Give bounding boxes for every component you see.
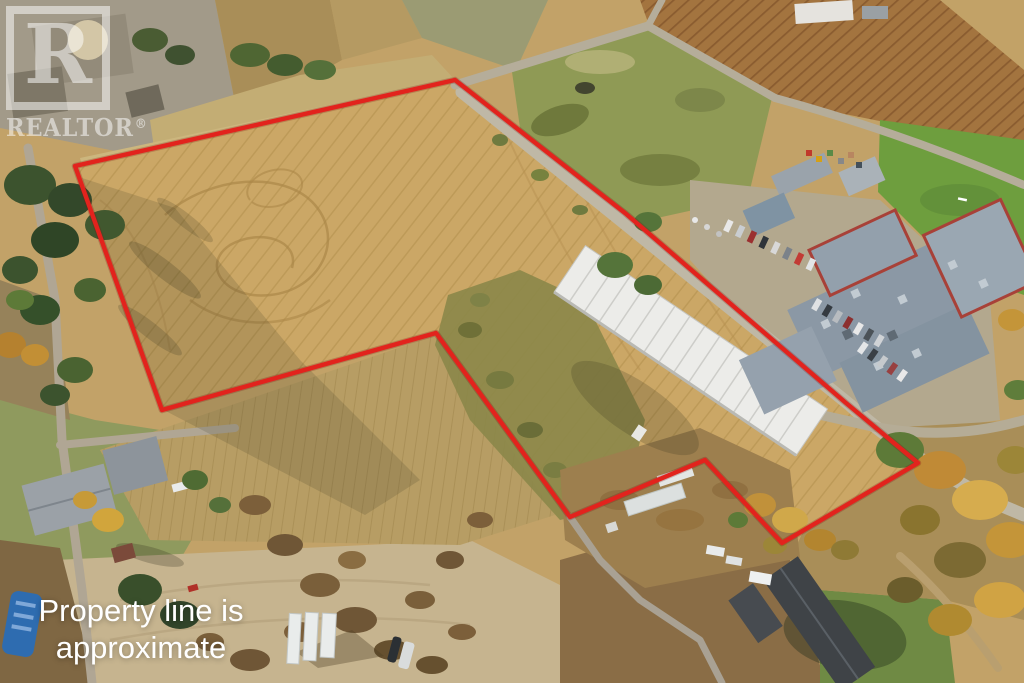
realtor-brand-text: REALTOR [6,113,134,142]
realtor-logo-box: R [6,6,110,110]
disclaimer-line2: approximate [18,629,264,666]
realtor-logo-letter: R [24,14,92,96]
realtor-logo-text: REALTOR® [6,113,148,142]
pond [575,82,595,94]
rv-trailers [287,611,337,665]
realtor-watermark: R REALTOR® [6,6,159,142]
property-line-disclaimer: Property line is approximate [18,592,264,666]
aerial-photo: R REALTOR® Property line is approximate [0,0,1024,683]
disclaimer-line1: Property line is [18,592,264,629]
registered-symbol: ® [135,117,148,132]
